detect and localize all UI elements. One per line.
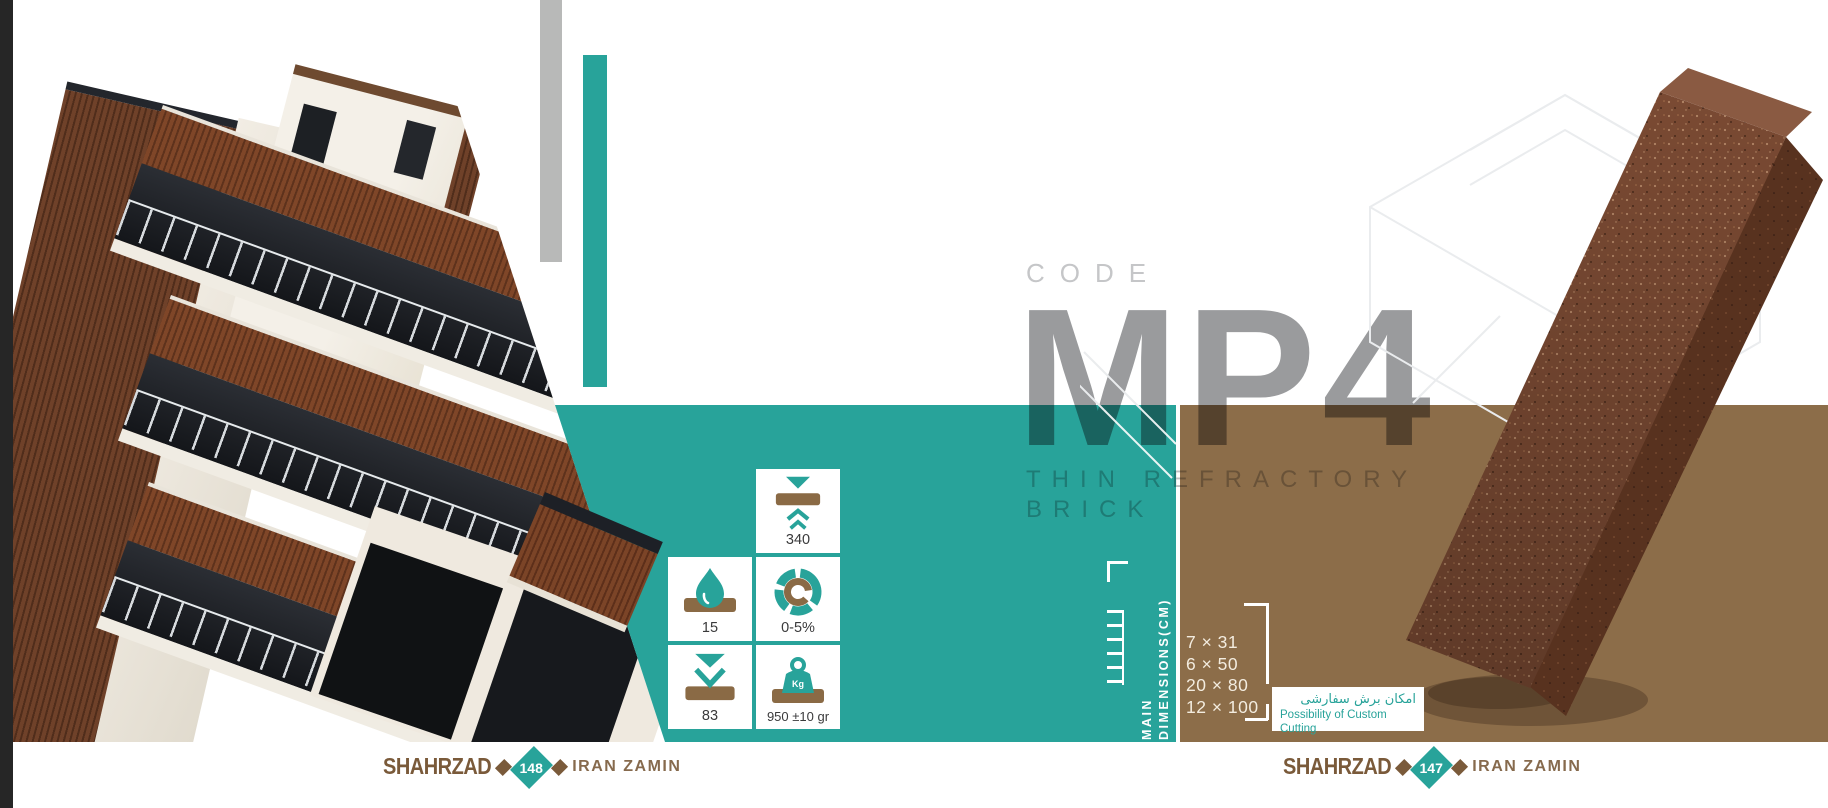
segmented-ring-icon — [770, 564, 826, 620]
brand-iran-zamin: IRAN ZAMIN — [572, 758, 681, 776]
diamond-icon — [551, 758, 568, 775]
page-number: 148 — [520, 759, 543, 775]
catalog-page: CODE MP4 THIN REFRACTORY BRICK — [0, 0, 1828, 808]
size-item: 7 × 31 — [1186, 632, 1259, 654]
compression-icon — [768, 473, 828, 532]
brand-shahrzad: SHAHRZAD — [1283, 754, 1391, 780]
building-photo — [13, 0, 665, 742]
spec-value: 15 — [702, 620, 718, 636]
page-number: 147 — [1420, 759, 1443, 775]
footer-logo-right: SHAHRZAD 147 IRAN ZAMIN — [1283, 744, 1581, 790]
ruler-icon — [1103, 610, 1124, 685]
corner-bracket — [1107, 561, 1128, 564]
tower-window — [394, 120, 437, 180]
diamond-icon — [495, 758, 512, 775]
diamond-icon — [1395, 758, 1412, 775]
svg-text:Kg: Kg — [792, 679, 804, 689]
dimensions-heading-word1: MAIN — [1140, 668, 1154, 740]
spec-tile-weight: Kg 950 ±10 gr — [756, 645, 840, 729]
teal-accent-bar — [583, 55, 607, 387]
page-number-diamond: 147 — [1410, 746, 1453, 789]
spec-value: 950 ±10 gr — [767, 709, 829, 724]
spec-value: 83 — [702, 708, 718, 724]
spec-tile-water-absorption: 15 — [668, 557, 752, 641]
dimensions-heading-word2: DIMENSIONS(CM) — [1157, 551, 1171, 740]
corner-bracket — [1107, 561, 1110, 582]
custom-cutting-en: Possibility of Custom Cutting — [1280, 708, 1416, 736]
dimension-bracket — [1266, 603, 1269, 684]
subtitle-line2: BRICK — [1026, 495, 1418, 525]
subtitle-line1: THIN REFRACTORY — [1026, 465, 1418, 495]
water-drop-icon — [680, 564, 740, 620]
gray-accent-bar — [540, 0, 562, 262]
footer-logo-left: SHAHRZAD 148 IRAN ZAMIN — [383, 744, 681, 790]
weight-icon: Kg — [768, 649, 828, 709]
spec-tile-porosity: 0-5% — [756, 557, 840, 641]
page-number-diamond: 148 — [510, 746, 553, 789]
brand-shahrzad: SHAHRZAD — [383, 754, 491, 780]
product-code: MP4 — [1016, 280, 1437, 476]
diamond-icon — [1451, 758, 1468, 775]
size-item: 12 × 100 — [1186, 697, 1259, 719]
size-item: 6 × 50 — [1186, 654, 1259, 676]
dimension-bracket — [1245, 718, 1268, 721]
impact-arrow-icon — [680, 649, 740, 708]
spec-tile-impact: 83 — [668, 645, 752, 729]
custom-cutting-fa: امکان برش سفارشی — [1280, 691, 1416, 708]
custom-cutting-note: امکان برش سفارشی Possibility of Custom C… — [1272, 687, 1424, 731]
brand-iran-zamin: IRAN ZAMIN — [1472, 758, 1581, 776]
spec-value: 0-5% — [781, 620, 815, 636]
size-item: 20 × 80 — [1186, 675, 1259, 697]
page-edge-strip — [0, 0, 13, 808]
spec-tile-compressive-strength: 340 — [756, 469, 840, 553]
dimension-bracket — [1244, 603, 1268, 606]
spec-value: 340 — [786, 532, 810, 548]
product-subtitle: THIN REFRACTORY BRICK — [1026, 465, 1418, 524]
size-list: 7 × 31 6 × 50 20 × 80 12 × 100 — [1186, 632, 1259, 718]
